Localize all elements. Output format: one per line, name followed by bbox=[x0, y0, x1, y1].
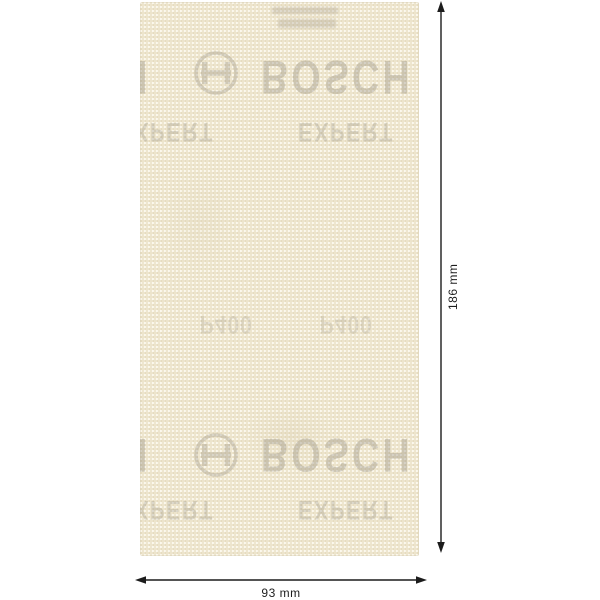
brand-watermark: BOSCH bbox=[261, 54, 413, 101]
width-dimension-label: 93 mm bbox=[231, 586, 331, 600]
product-image-canvas: BOSCH BOSCH EXPERT EXPERT P400 P400 P400… bbox=[0, 0, 600, 600]
sanding-sheet: BOSCH BOSCH EXPERT EXPERT P400 P400 P400… bbox=[140, 2, 419, 556]
grit-watermark: P400 bbox=[320, 311, 373, 336]
grit-watermark: P400 bbox=[200, 311, 253, 336]
faint-print-line bbox=[278, 19, 336, 28]
brand-watermark-fragment: BOSCH bbox=[140, 54, 151, 101]
series-watermark: EXPERT bbox=[140, 118, 214, 145]
texture-blotch bbox=[150, 152, 250, 292]
height-dimension-label: 186 mm bbox=[446, 244, 460, 310]
series-watermark: EXPERT bbox=[298, 496, 394, 523]
series-watermark: EXPERT bbox=[298, 118, 394, 145]
brand-watermark-fragment: BOSCH bbox=[140, 432, 151, 479]
texture-blotch bbox=[230, 392, 350, 482]
brand-watermark: BOSCH bbox=[261, 432, 413, 479]
faint-print-line bbox=[272, 7, 338, 14]
bosch-armature-logo-icon bbox=[192, 431, 240, 479]
series-watermark: EXPERT bbox=[140, 496, 214, 523]
bosch-armature-logo-icon bbox=[192, 49, 240, 97]
